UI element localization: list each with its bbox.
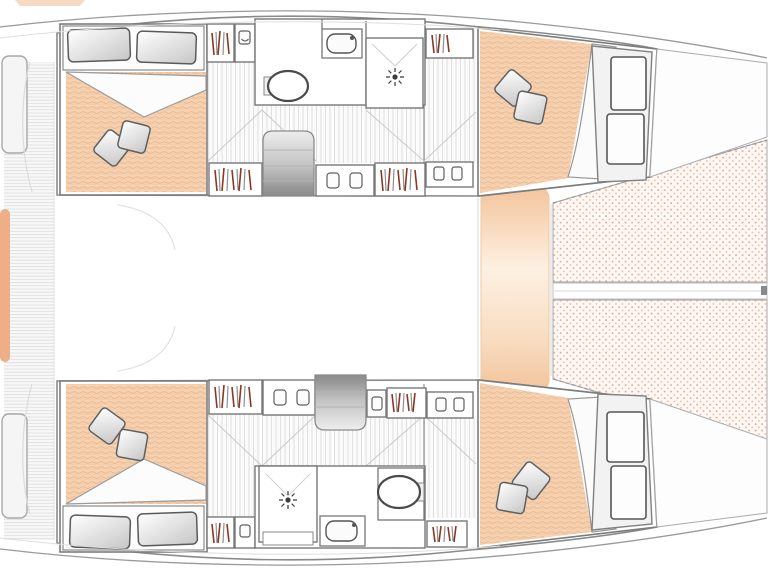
starboard-corridor-hatch [424, 418, 477, 518]
locker-box [207, 24, 234, 62]
starboard-bathroom [255, 466, 425, 548]
sink-faucet [352, 523, 356, 527]
locker-box [207, 517, 234, 548]
shower-spray-icon [392, 74, 397, 79]
deck-smear [15, 0, 85, 6]
toilet-icon [268, 71, 308, 101]
throw-pillow [513, 90, 547, 124]
throw-pillow [496, 482, 528, 514]
locker-box [316, 165, 374, 196]
shower-shelf [263, 532, 313, 545]
latch-icon [350, 173, 362, 188]
throw-pillow [117, 120, 151, 154]
foredeck-sunpad [481, 187, 549, 391]
bed-pillow [136, 31, 196, 64]
port-wardrobe-aft [207, 24, 255, 62]
staircase [315, 375, 366, 430]
starboard-passage-hatch-left [207, 413, 255, 518]
bed-pillow [69, 515, 130, 549]
shower-spray-icon [285, 497, 290, 502]
locker-box [427, 392, 473, 418]
locker-box [426, 162, 473, 187]
latch-icon [327, 173, 339, 188]
latch-icon [454, 398, 464, 411]
bed-panel [611, 466, 646, 519]
locker-box [209, 380, 262, 414]
port-passage-hatch-left [207, 62, 255, 163]
starboard-forward-cabin [478, 380, 657, 548]
port-bathroom [255, 19, 425, 108]
cockpit-bench [0, 209, 10, 362]
latch-icon [239, 31, 250, 44]
beam-fitting [761, 286, 767, 295]
staircase [263, 131, 314, 196]
latch-icon [372, 397, 382, 410]
latch-icon [436, 398, 446, 411]
bed-panel [607, 412, 644, 462]
port-forward-cabin [478, 28, 657, 196]
sink-faucet [350, 36, 354, 40]
locker-box [427, 521, 467, 547]
bed-pillow [67, 28, 130, 62]
latch-icon [434, 167, 444, 180]
throw-pillow [116, 429, 148, 461]
port-aft-cabin [60, 24, 207, 195]
starboard-corridor-lockers [427, 521, 467, 547]
bed-panel [607, 114, 644, 164]
starboard-aft-cabin [60, 381, 207, 552]
floorplan-svg [0, 0, 768, 576]
floorplan [0, 0, 768, 576]
bed-pillow [137, 512, 197, 546]
starboard-wardrobe-aft [207, 517, 255, 548]
locker-box [209, 163, 262, 196]
toilet-icon [378, 476, 420, 508]
latch-icon [274, 390, 286, 405]
latch-icon [452, 167, 462, 180]
shower-stall [366, 38, 423, 108]
latch-icon [297, 390, 309, 405]
bed-panel [611, 57, 646, 110]
shower-stall [259, 466, 317, 542]
latch-icon [240, 525, 250, 537]
